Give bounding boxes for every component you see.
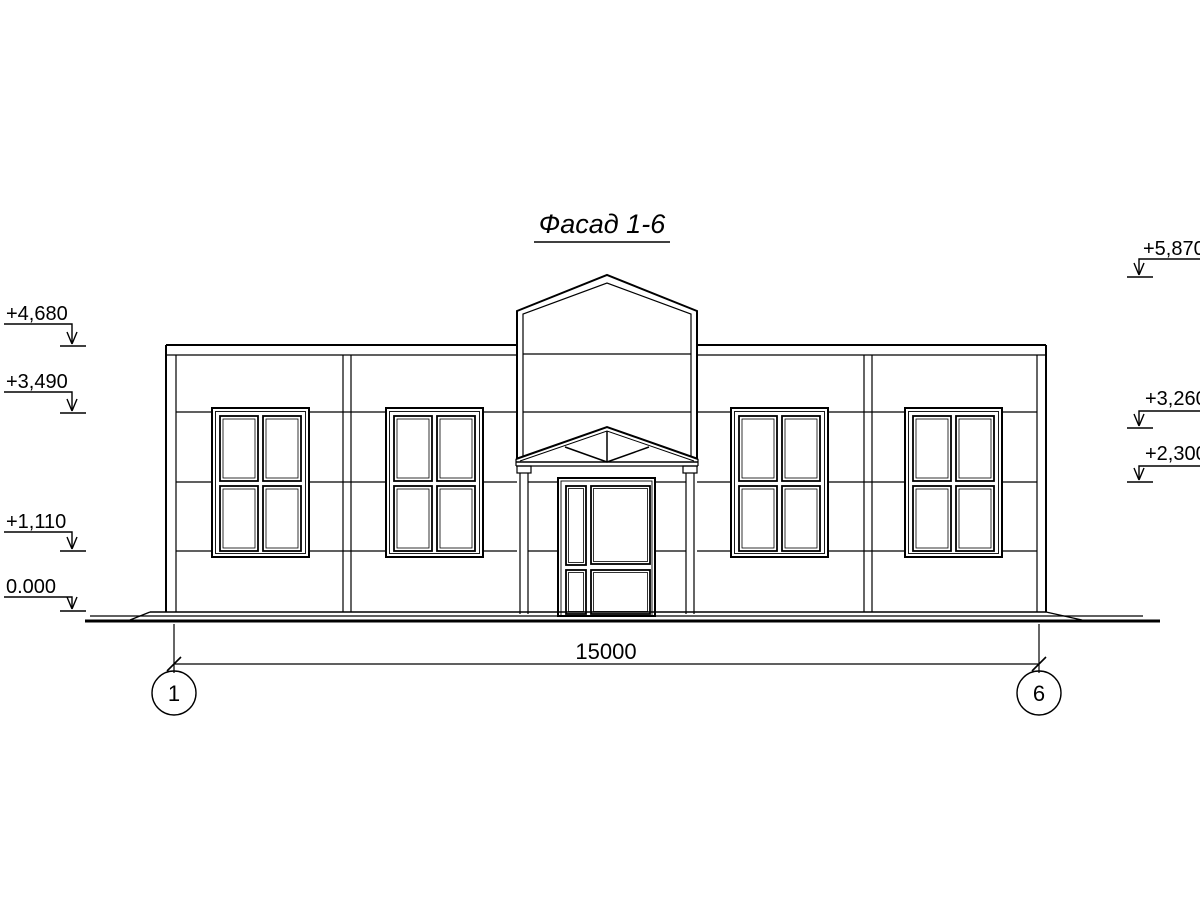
dimension-line-group: 15000 — [167, 624, 1046, 673]
elevation-mark-label: +4,680 — [6, 303, 68, 325]
entrance-canopy — [516, 427, 698, 614]
door-leaf-glazing — [591, 486, 650, 564]
window-3 — [731, 408, 828, 557]
elevation-mark-left-3490: +3,490 — [4, 371, 86, 413]
panel-joint-right — [864, 355, 872, 612]
door-sidelight-upper — [566, 486, 586, 565]
elevation-mark-label: +2,300 — [1145, 443, 1200, 465]
dimension-value: 15000 — [575, 639, 636, 664]
door-sidelight-lower-inner — [569, 573, 584, 612]
elevation-mark-leader — [4, 597, 72, 608]
elevation-mark-left-4680: +4,680 — [4, 303, 86, 346]
window-4 — [905, 408, 1002, 557]
door-leaf-glazing-inner — [594, 489, 648, 562]
axis-number: 6 — [1033, 681, 1045, 706]
elevation-mark-right-2300: +2,300 — [1127, 443, 1200, 482]
canopy-column-right — [686, 473, 694, 614]
canopy-column-capital-right — [683, 466, 697, 473]
elevation-mark-label: +3,490 — [6, 371, 68, 393]
elevation-mark-leader — [4, 392, 72, 410]
axis-bubble-6: 6 — [1017, 671, 1061, 715]
drawing-title: Фасад 1-6 — [539, 209, 666, 239]
door-sidelight-lower — [566, 570, 586, 614]
elevation-mark-leader — [1139, 259, 1200, 274]
elevation-mark-right-5870: +5,870 — [1127, 238, 1200, 277]
elevation-mark-left-1110: +1,110 — [4, 511, 86, 551]
window-2 — [386, 408, 483, 557]
elevation-mark-leader — [4, 324, 72, 343]
elevation-mark-right-3260: +3,260 — [1127, 388, 1200, 428]
entrance-door — [558, 478, 655, 616]
door-frame-outer — [558, 478, 655, 616]
parapet-bottom-line — [166, 354, 1046, 355]
elevation-mark-leader — [1139, 411, 1200, 425]
elevation-mark-leader — [4, 532, 72, 548]
canopy-column-left — [520, 473, 528, 614]
portal-inner-outline — [523, 283, 691, 456]
window-1 — [212, 408, 309, 557]
elevation-mark-label: 0.000 — [6, 576, 56, 598]
door-sidelight-upper-inner — [569, 489, 584, 563]
axis-number: 1 — [168, 681, 180, 706]
drawing-title-block: Фасад 1-6 — [534, 209, 670, 242]
elevation-mark-label: +1,110 — [6, 511, 66, 533]
door-leaf-panel-inner — [594, 573, 648, 612]
door-frame-inner — [561, 481, 652, 616]
canopy-column-capital-left — [517, 466, 531, 473]
facade-elevation-svg: Фасад 1-6 — [0, 0, 1200, 900]
elevation-mark-left-0000: 0.000 — [4, 576, 86, 611]
elevation-mark-leader — [1139, 466, 1200, 479]
elevation-mark-label: +5,870 — [1143, 238, 1200, 260]
axis-bubble-1: 1 — [152, 671, 196, 715]
panel-joint-left — [343, 355, 351, 612]
elevation-mark-label: +3,260 — [1145, 388, 1200, 410]
facade-drawing-sheet: Фасад 1-6 — [0, 0, 1200, 900]
door-leaf-panel — [591, 570, 650, 614]
